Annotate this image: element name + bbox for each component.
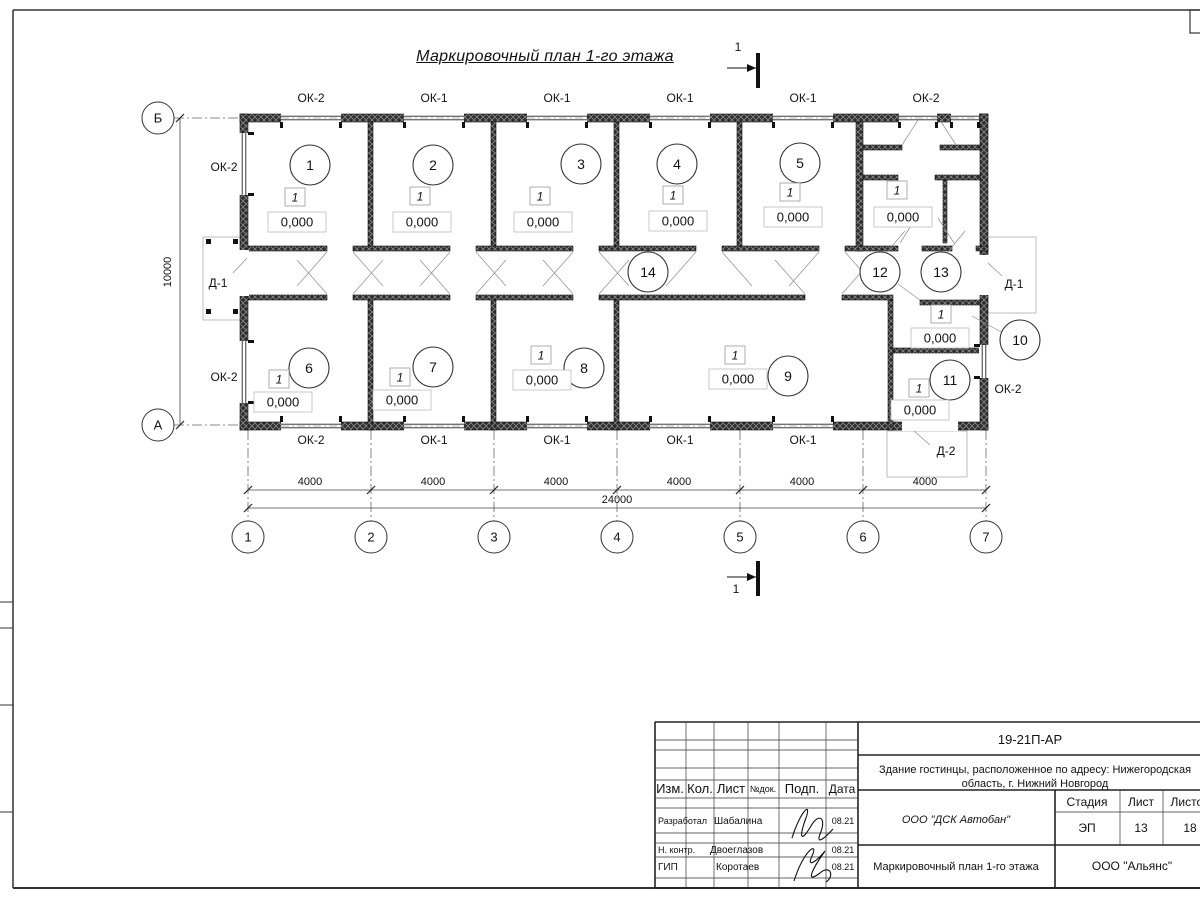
svg-text:4000: 4000 [790,476,814,488]
svg-text:4000: 4000 [667,476,691,488]
svg-text:0,000: 0,000 [662,214,695,229]
svg-text:Изм.: Изм. [656,781,684,796]
svg-text:19-21П-АР: 19-21П-АР [998,732,1062,747]
svg-text:Н. контр.: Н. контр. [658,845,695,855]
svg-text:4: 4 [613,530,620,545]
svg-text:1: 1 [916,382,923,396]
svg-text:18: 18 [1183,821,1197,835]
room-marker: 14 [628,252,668,292]
room-marker: 5 [780,143,820,183]
svg-text:1: 1 [292,191,299,205]
svg-text:Стадия: Стадия [1067,795,1108,809]
room-marker: 13 [921,252,961,292]
svg-text:08.21: 08.21 [832,816,855,826]
svg-text:ОК-2: ОК-2 [298,433,325,447]
svg-text:ОК-1: ОК-1 [421,91,448,105]
svg-text:3: 3 [577,156,585,172]
room-marker: 2 [413,145,453,185]
svg-text:Дата: Дата [829,782,856,796]
svg-text:ОК-2: ОК-2 [995,382,1022,396]
svg-text:8: 8 [580,360,588,376]
svg-text:1: 1 [735,40,742,54]
svg-text:ООО "ДСК Автобан": ООО "ДСК Автобан" [902,814,1011,826]
svg-text:ОК-1: ОК-1 [544,433,571,447]
room-markers: 1234567891011121314 [289,143,1040,400]
svg-text:6: 6 [305,360,313,376]
svg-text:1: 1 [538,349,545,363]
svg-text:1: 1 [938,308,945,322]
svg-text:1: 1 [670,189,677,203]
svg-text:1: 1 [276,373,283,387]
svg-text:ОК-2: ОК-2 [298,91,325,105]
svg-text:9: 9 [784,368,792,384]
svg-text:ОК-2: ОК-2 [211,160,238,174]
svg-text:0,000: 0,000 [887,210,920,225]
svg-text:ОК-1: ОК-1 [421,433,448,447]
svg-text:2: 2 [429,157,437,173]
svg-text:ОК-2: ОК-2 [211,370,238,384]
svg-text:0,000: 0,000 [904,403,937,418]
svg-text:№док.: №док. [750,784,776,794]
svg-text:Лист: Лист [717,781,745,796]
svg-text:Д-1: Д-1 [1005,277,1024,291]
svg-text:Маркировочный план 1-го этажа: Маркировочный план 1-го этажа [873,861,1039,873]
svg-text:1: 1 [733,582,740,596]
svg-text:5: 5 [796,155,804,171]
svg-text:ОК-1: ОК-1 [667,91,694,105]
svg-text:ГИП: ГИП [658,862,678,873]
room-marker: 9 [768,356,808,396]
svg-text:Здание гостинцы, расположенное: Здание гостинцы, расположенное по адресу… [879,764,1191,776]
svg-text:0,000: 0,000 [722,372,755,387]
svg-text:4: 4 [673,156,681,172]
signature [792,809,833,839]
drawing-title: Маркировочный план 1-го этажа [395,48,695,66]
room-marker: 1 [290,145,330,185]
svg-text:ООО "Альянс": ООО "Альянс" [1092,859,1172,873]
svg-text:Коротаев: Коротаев [716,862,759,873]
svg-text:Д-2: Д-2 [937,444,956,458]
svg-text:Двоеглазов: Двоеглазов [710,845,763,856]
svg-text:0,000: 0,000 [924,331,957,346]
svg-text:ЭП: ЭП [1078,821,1095,835]
room-marker: 10 [1000,320,1040,360]
svg-text:ОК-2: ОК-2 [913,91,940,105]
svg-text:Листов: Листов [1171,795,1200,809]
svg-text:1: 1 [787,186,794,200]
room-marker: 7 [413,347,453,387]
svg-text:4000: 4000 [544,476,568,488]
svg-text:2: 2 [367,530,374,545]
svg-text:Кол.: Кол. [687,781,713,796]
svg-text:1: 1 [244,530,251,545]
svg-text:10000: 10000 [162,257,174,288]
svg-text:Разработал: Разработал [658,816,707,826]
svg-text:6: 6 [859,530,866,545]
signature [794,849,831,882]
svg-text:1: 1 [417,190,424,204]
svg-text:1: 1 [894,184,901,198]
svg-text:7: 7 [982,530,989,545]
drawing-sheet: 4000400040004000400040002400010000123456… [0,0,1200,900]
floor-plan-svg: 4000400040004000400040002400010000123456… [0,0,1200,900]
svg-text:4000: 4000 [298,476,322,488]
room-marker: 4 [657,144,697,184]
svg-text:0,000: 0,000 [777,210,810,225]
svg-text:3: 3 [490,530,497,545]
svg-text:Д-1: Д-1 [209,276,228,290]
porches [203,237,1036,477]
room-marker: 6 [289,348,329,388]
room-marker: 12 [860,252,900,292]
svg-text:0,000: 0,000 [281,215,314,230]
svg-text:12: 12 [872,264,888,280]
svg-text:0,000: 0,000 [406,215,439,230]
svg-text:ОК-1: ОК-1 [790,433,817,447]
svg-text:0,000: 0,000 [267,395,300,410]
svg-text:14: 14 [640,264,656,280]
svg-text:24000: 24000 [602,494,633,506]
svg-text:08.21: 08.21 [832,862,855,872]
svg-text:0,000: 0,000 [386,393,419,408]
svg-text:0,000: 0,000 [527,215,560,230]
svg-text:1: 1 [397,371,404,385]
svg-text:08.21: 08.21 [832,845,855,855]
svg-text:13: 13 [1134,821,1148,835]
svg-text:Шабалина: Шабалина [714,815,763,827]
svg-text:4000: 4000 [421,476,445,488]
svg-text:4000: 4000 [913,476,937,488]
svg-text:7: 7 [429,359,437,375]
svg-text:1: 1 [732,349,739,363]
svg-text:А: А [154,418,163,433]
svg-text:Лист: Лист [1128,795,1155,809]
svg-text:1: 1 [306,157,314,173]
svg-text:13: 13 [933,264,949,280]
room-marker: 3 [561,144,601,184]
room-marker: 11 [930,360,970,400]
svg-text:Б: Б [154,111,163,126]
title-block: Изм.Кол.Лист№док.Подп.ДатаРазработалШаба… [655,722,1200,888]
svg-text:ОК-1: ОК-1 [667,433,694,447]
svg-text:5: 5 [736,530,743,545]
svg-text:10: 10 [1012,332,1028,348]
svg-text:1: 1 [537,190,544,204]
svg-text:ОК-1: ОК-1 [790,91,817,105]
svg-text:область, г. Нижний Новгород: область, г. Нижний Новгород [962,778,1109,790]
svg-text:ОК-1: ОК-1 [544,91,571,105]
svg-text:11: 11 [943,372,958,388]
svg-text:0,000: 0,000 [526,373,559,388]
svg-text:Подп.: Подп. [785,781,820,796]
section-marks: 11 [727,40,760,596]
